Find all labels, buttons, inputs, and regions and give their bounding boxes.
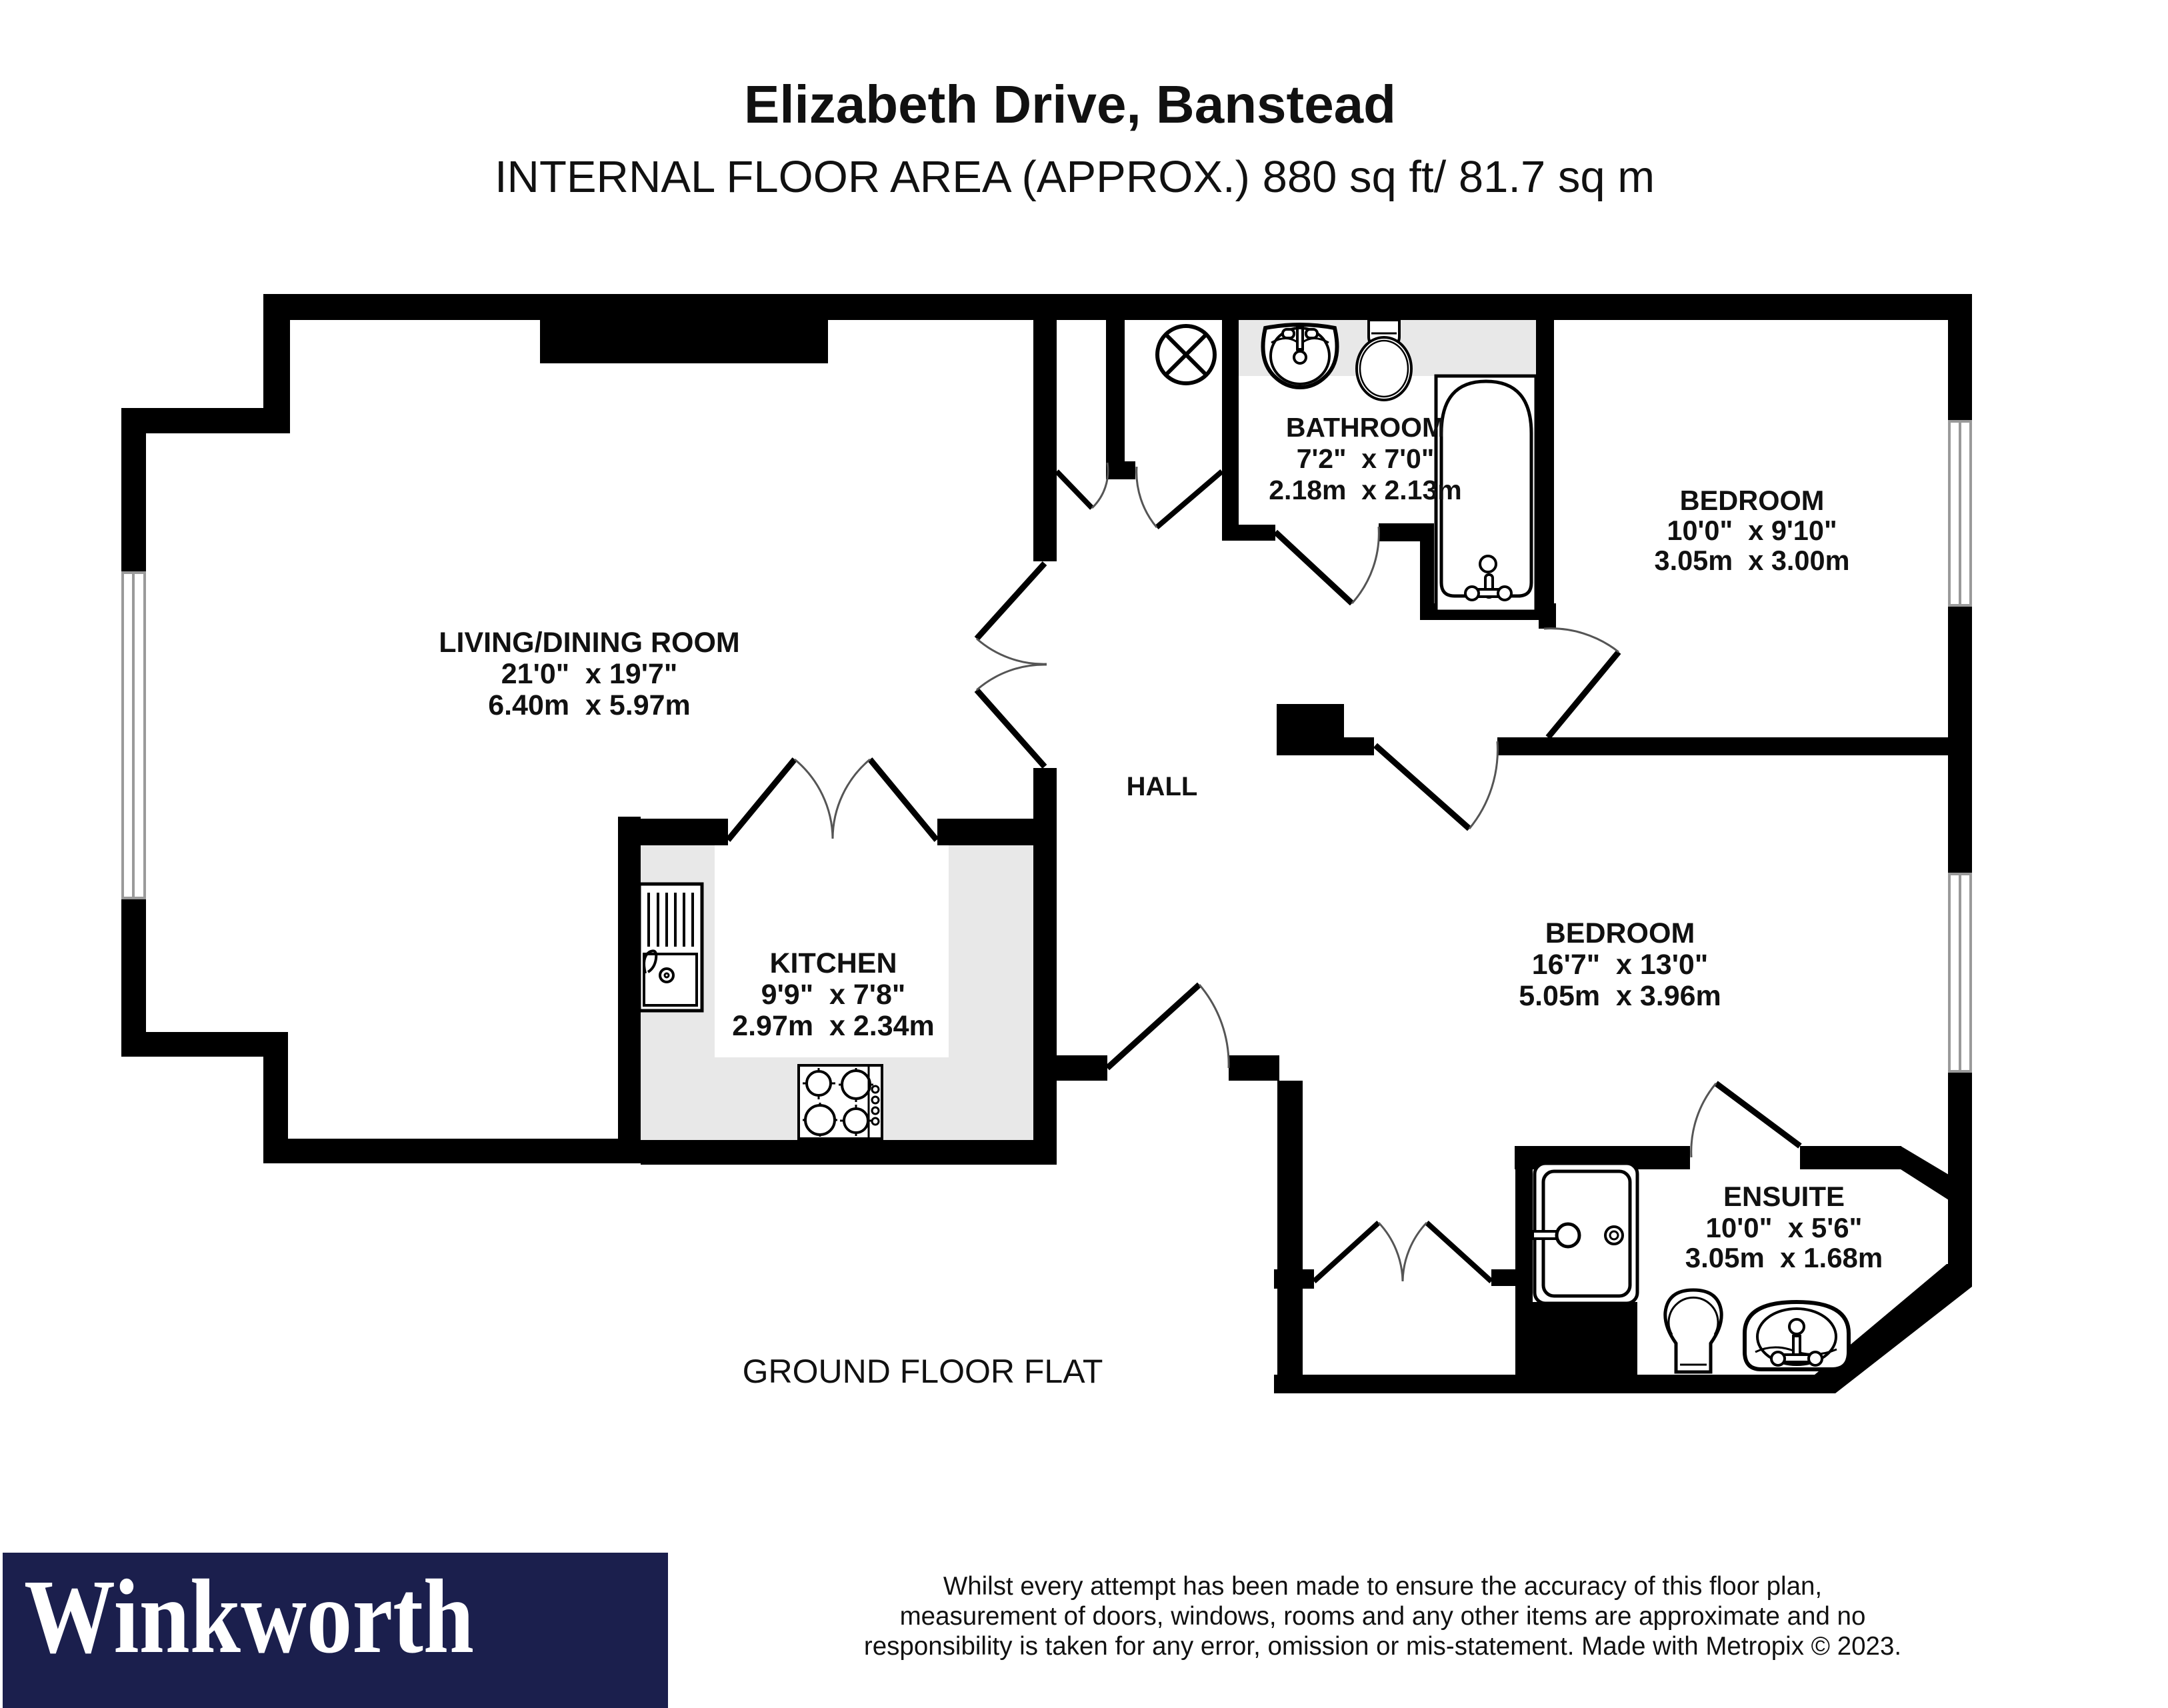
svg-text:21'0" x 19'7": 21'0" x 19'7" — [501, 658, 677, 690]
svg-text:INTERNAL FLOOR AREA (APPROX.): INTERNAL FLOOR AREA (APPROX.) 880 sq ft/… — [495, 152, 1655, 202]
svg-text:Elizabeth Drive, Banstead: Elizabeth Drive, Banstead — [744, 75, 1396, 134]
svg-text:2.97m x 2.34m: 2.97m x 2.34m — [732, 1010, 935, 1042]
svg-text:10'0" x 9'10": 10'0" x 9'10" — [1667, 515, 1837, 546]
svg-text:ENSUITE: ENSUITE — [1723, 1181, 1845, 1212]
svg-text:9'9" x 7'8": 9'9" x 7'8" — [761, 979, 906, 1011]
svg-text:measurement of doors, windows,: measurement of doors, windows, rooms and… — [900, 1602, 1866, 1631]
svg-text:BATHROOM: BATHROOM — [1286, 412, 1445, 443]
svg-text:Whilst every attempt has been: Whilst every attempt has been made to en… — [943, 1572, 1822, 1601]
svg-text:Winkworth: Winkworth — [24, 1559, 474, 1676]
svg-text:6.40m x 5.97m: 6.40m x 5.97m — [488, 689, 691, 721]
svg-text:16'7" x 13'0": 16'7" x 13'0" — [1532, 949, 1708, 981]
svg-text:BEDROOM: BEDROOM — [1680, 485, 1825, 516]
svg-text:5.05m x 3.96m: 5.05m x 3.96m — [1519, 980, 1721, 1012]
svg-text:HALL: HALL — [1127, 772, 1198, 801]
svg-text:3.05m x 3.00m: 3.05m x 3.00m — [1654, 545, 1849, 576]
svg-text:GROUND FLOOR FLAT: GROUND FLOOR FLAT — [743, 1353, 1103, 1390]
svg-text:KITCHEN: KITCHEN — [769, 947, 897, 979]
svg-text:3.05m x 1.68m: 3.05m x 1.68m — [1685, 1242, 1883, 1273]
svg-text:7'2" x 7'0": 7'2" x 7'0" — [1297, 443, 1435, 474]
svg-text:responsibility is taken for an: responsibility is taken for any error, o… — [864, 1632, 1901, 1661]
svg-text:10'0" x 5'6": 10'0" x 5'6" — [1706, 1212, 1863, 1243]
svg-text:LIVING/DINING ROOM: LIVING/DINING ROOM — [439, 627, 740, 659]
svg-text:2.18m x 2.13m: 2.18m x 2.13m — [1269, 475, 1461, 505]
svg-text:BEDROOM: BEDROOM — [1545, 917, 1695, 949]
